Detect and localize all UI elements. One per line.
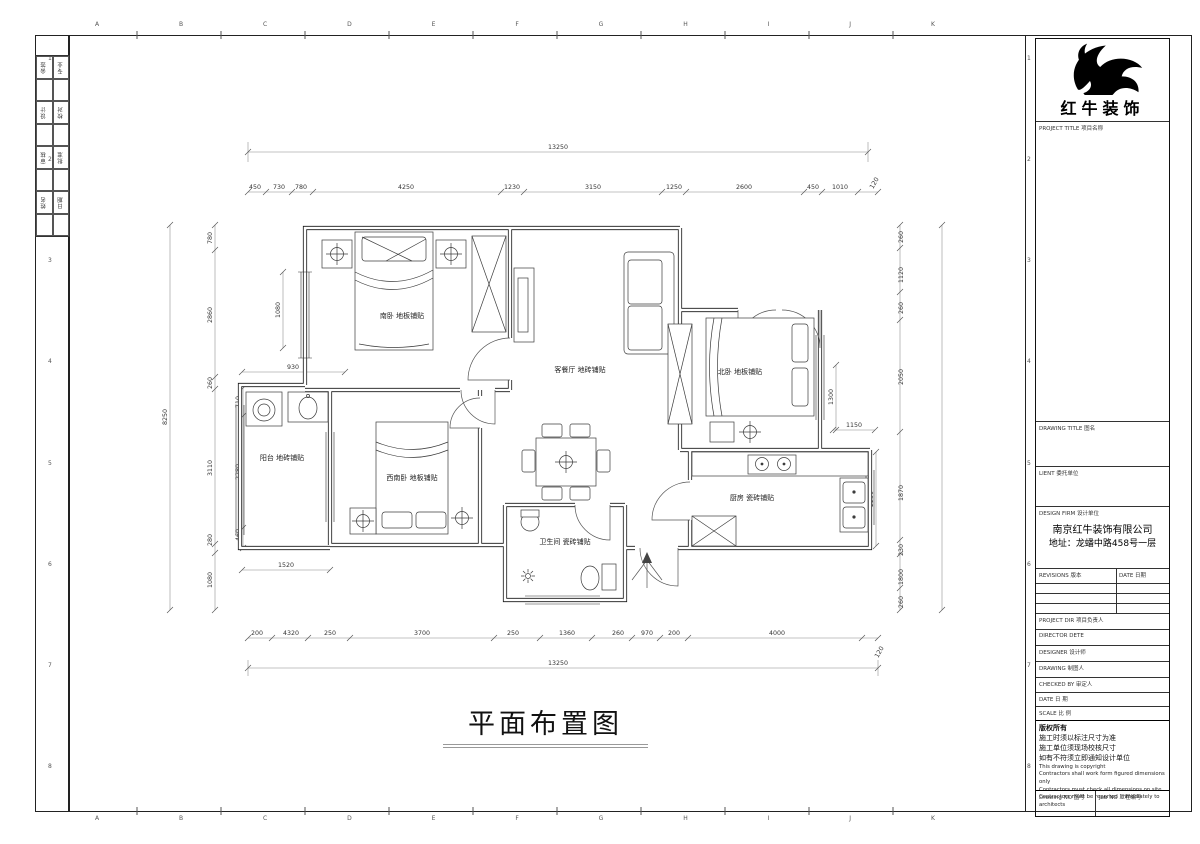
grid-letter: F bbox=[515, 815, 518, 822]
titleblock-left-line bbox=[1025, 35, 1026, 812]
copyright-note: 施工单位须现场校核尺寸 bbox=[1039, 743, 1166, 753]
dim-bottom-overall: 13250 bbox=[548, 660, 568, 667]
grid-number: 5 bbox=[1027, 460, 1031, 467]
dim: 1010 bbox=[832, 184, 848, 191]
grid-letter: G bbox=[599, 21, 604, 28]
room-label-balcony: 阳台 地砖铺贴 bbox=[260, 453, 304, 462]
dim: 730 bbox=[273, 184, 285, 191]
grid-number: 4 bbox=[1027, 358, 1031, 365]
dim: 970 bbox=[641, 630, 653, 637]
dim: 2860 bbox=[207, 307, 214, 323]
dim: 260 bbox=[898, 596, 905, 608]
dim: 1120 bbox=[898, 267, 905, 283]
copyright-notes-cn: 施工时须以标注尺寸为准施工单位须现场校核尺寸如有不符须立即通知设计单位 bbox=[1039, 733, 1166, 763]
client-label: LIENT 委托单位 bbox=[1039, 471, 1078, 477]
dim: 200 bbox=[251, 630, 263, 637]
grid-letter: K bbox=[931, 21, 935, 28]
drawing-sheet: ABCDEFGHIJK ABCDEFGHIJK 12345678 1234567… bbox=[0, 0, 1200, 844]
grid-letter: A bbox=[95, 815, 99, 822]
drawing-no-label: Drawing NO 图号 bbox=[1039, 795, 1085, 801]
drawing-title-label: DRAWING TITLE 图名 bbox=[1039, 426, 1095, 432]
dim: 260 bbox=[898, 302, 905, 314]
grid-letter: B bbox=[179, 815, 183, 822]
grid-number: 6 bbox=[1027, 561, 1031, 568]
bull-logo-icon bbox=[1048, 39, 1158, 95]
room-label-north-bedroom: 北卧 地板铺贴 bbox=[718, 367, 762, 376]
signoff-cell: 校对 bbox=[57, 106, 65, 119]
signoff-cell: 设计 bbox=[40, 106, 48, 119]
signoff-cell: 审核 bbox=[40, 151, 48, 164]
room-label-south-bedroom: 南卧 地板铺贴 bbox=[380, 311, 424, 320]
dim: 780 bbox=[207, 232, 214, 244]
director-label: DIRECTOR DETE bbox=[1039, 633, 1084, 639]
room-label-southwest-bedroom: 西南卧 地板铺贴 bbox=[386, 473, 437, 482]
signoff-cell: 姓名 bbox=[40, 196, 48, 209]
grid-letter: I bbox=[768, 815, 770, 822]
design-firm-address: 地址：龙蟠中路458号一层 bbox=[1039, 538, 1166, 552]
job-no-label: Job NO 工程编号 bbox=[1099, 795, 1141, 801]
room-label-living-dining: 客餐厅 地砖铺贴 bbox=[554, 365, 605, 374]
grid-letter: G bbox=[599, 815, 604, 822]
signoff-cell: 会签 bbox=[40, 61, 48, 74]
dim: 1080 bbox=[275, 302, 282, 318]
floor-plan: 13250 450 730 780 4250 1230 3150 1250 26… bbox=[150, 120, 960, 700]
grid-letter: I bbox=[768, 21, 770, 28]
dim: 260 bbox=[898, 231, 905, 243]
bed-north-bedroom bbox=[668, 318, 814, 443]
signoff-cell: 日期 bbox=[57, 196, 65, 209]
dim-left-overall: 8250 bbox=[162, 409, 169, 425]
design-firm-name: 南京红牛装饰有限公司 bbox=[1039, 523, 1166, 538]
grid-letter: B bbox=[179, 21, 183, 28]
dim: 450 bbox=[807, 184, 819, 191]
dim: 1870 bbox=[898, 485, 905, 501]
grid-letter: C bbox=[263, 815, 267, 822]
dim: 2600 bbox=[736, 184, 752, 191]
dim: 260 bbox=[612, 630, 624, 637]
grid-letter: D bbox=[347, 815, 352, 822]
balcony-fixtures bbox=[246, 392, 328, 426]
grid-letter: E bbox=[432, 815, 436, 822]
grid-number: 8 bbox=[48, 763, 52, 770]
grid-letter: K bbox=[931, 815, 935, 822]
grid-letter: J bbox=[849, 21, 851, 28]
scale-label: SCALE 比 例 bbox=[1039, 711, 1071, 717]
grid-number: 7 bbox=[48, 662, 52, 669]
grid-number: 1 bbox=[1027, 55, 1031, 62]
grid-letter: F bbox=[515, 21, 518, 28]
dim: 3110 bbox=[207, 460, 214, 476]
grid-letter: C bbox=[263, 21, 267, 28]
grid-ticks-top bbox=[95, 31, 935, 39]
plan-title: 平面布置图 bbox=[443, 702, 648, 748]
room-label-kitchen: 厨房 瓷砖铺贴 bbox=[730, 493, 774, 502]
grid-letters-bottom: ABCDEFGHIJK bbox=[95, 815, 935, 822]
dim: 1300 bbox=[828, 389, 835, 405]
signoff-table: 会签 专业 设计 校对 审核 批准 姓名 日期 bbox=[35, 55, 70, 237]
dim-top-overall: 13250 bbox=[548, 144, 568, 151]
grid-number: 4 bbox=[48, 358, 52, 365]
dim: 280 bbox=[207, 534, 214, 546]
grid-letter: E bbox=[432, 21, 436, 28]
dim: 1250 bbox=[666, 184, 682, 191]
room-label-bathroom: 卫生间 瓷砖铺贴 bbox=[539, 537, 590, 546]
company-name: 红牛装饰 bbox=[1036, 95, 1169, 119]
dim: 1230 bbox=[504, 184, 520, 191]
dim: 1800 bbox=[898, 569, 905, 585]
grid-numbers-right: 12345678 bbox=[1027, 55, 1031, 770]
signoff-cell: 专业 bbox=[57, 61, 65, 74]
copyright-title: 版权所有 bbox=[1039, 723, 1166, 733]
entry-arrow bbox=[632, 552, 662, 588]
dim: 4320 bbox=[283, 630, 299, 637]
dim: 120 bbox=[869, 176, 881, 190]
project-title-label: PROJECT TITLE 项目名称 bbox=[1039, 126, 1103, 132]
grid-number: 8 bbox=[1027, 763, 1031, 770]
grid-letters-top: ABCDEFGHIJK bbox=[95, 21, 935, 28]
copyright-note: 施工时须以标注尺寸为准 bbox=[1039, 733, 1166, 743]
design-firm-label: DESIGN FIRM 设计单位 bbox=[1039, 511, 1099, 517]
grid-number: 6 bbox=[48, 561, 52, 568]
title-block: 红牛装饰 PROJECT TITLE 项目名称 DRAWING TITLE 图名… bbox=[1035, 38, 1170, 817]
grid-letter: J bbox=[849, 815, 851, 822]
copyright-note: Contractors shall work form figured dime… bbox=[1039, 771, 1166, 786]
grid-letter: A bbox=[95, 21, 99, 28]
dim: 230 bbox=[898, 544, 905, 556]
dim: 250 bbox=[507, 630, 519, 637]
kitchen-fixtures bbox=[692, 452, 868, 546]
dim: 4250 bbox=[398, 184, 414, 191]
grid-number: 7 bbox=[1027, 662, 1031, 669]
dim: 4000 bbox=[769, 630, 785, 637]
bathroom-fixtures bbox=[521, 510, 616, 590]
dim: 250 bbox=[324, 630, 336, 637]
dim: 260 bbox=[207, 377, 214, 389]
designer-label: DESIGNER 设计师 bbox=[1039, 650, 1086, 656]
frame-right-line bbox=[1191, 35, 1192, 812]
bed-south-bedroom bbox=[322, 232, 506, 350]
revisions-date-label: DATE 日期 bbox=[1119, 573, 1146, 579]
dim: 1080 bbox=[207, 572, 214, 588]
living-dining-furniture bbox=[514, 252, 674, 500]
grid-number: 3 bbox=[48, 257, 52, 264]
dim: 2050 bbox=[898, 369, 905, 385]
checked-by-label: CHECKED BY 审定人 bbox=[1039, 682, 1092, 688]
dim: 200 bbox=[668, 630, 680, 637]
revisions-label: REVISIONS 版本 bbox=[1039, 573, 1081, 579]
project-dir-label: PROJECT DIR 项目负责人 bbox=[1039, 618, 1103, 624]
signoff-cell: 批准 bbox=[57, 151, 65, 164]
dim: 1150 bbox=[846, 422, 862, 429]
company-logo: 红牛装饰 bbox=[1036, 39, 1169, 121]
dim: 3700 bbox=[414, 630, 430, 637]
dim: 780 bbox=[295, 184, 307, 191]
grid-letter: D bbox=[347, 21, 352, 28]
grid-number: 5 bbox=[48, 460, 52, 467]
drawing-person-label: DRAWING 制图人 bbox=[1039, 666, 1084, 672]
dim: 1520 bbox=[278, 562, 294, 569]
copyright-note: 如有不符须立即通知设计单位 bbox=[1039, 753, 1166, 763]
grid-ticks-bottom bbox=[95, 807, 935, 815]
copyright-note: This drawing is copyright bbox=[1039, 764, 1166, 772]
dim: 1360 bbox=[559, 630, 575, 637]
grid-letter: H bbox=[683, 21, 688, 28]
grid-number: 3 bbox=[1027, 257, 1031, 264]
grid-number: 2 bbox=[1027, 156, 1031, 163]
dim: 930 bbox=[287, 364, 299, 371]
grid-letter: H bbox=[683, 815, 688, 822]
dim: 450 bbox=[249, 184, 261, 191]
date-label: DATE 日 期 bbox=[1039, 697, 1068, 703]
dim: 3150 bbox=[585, 184, 601, 191]
dim: 120 bbox=[874, 645, 886, 659]
